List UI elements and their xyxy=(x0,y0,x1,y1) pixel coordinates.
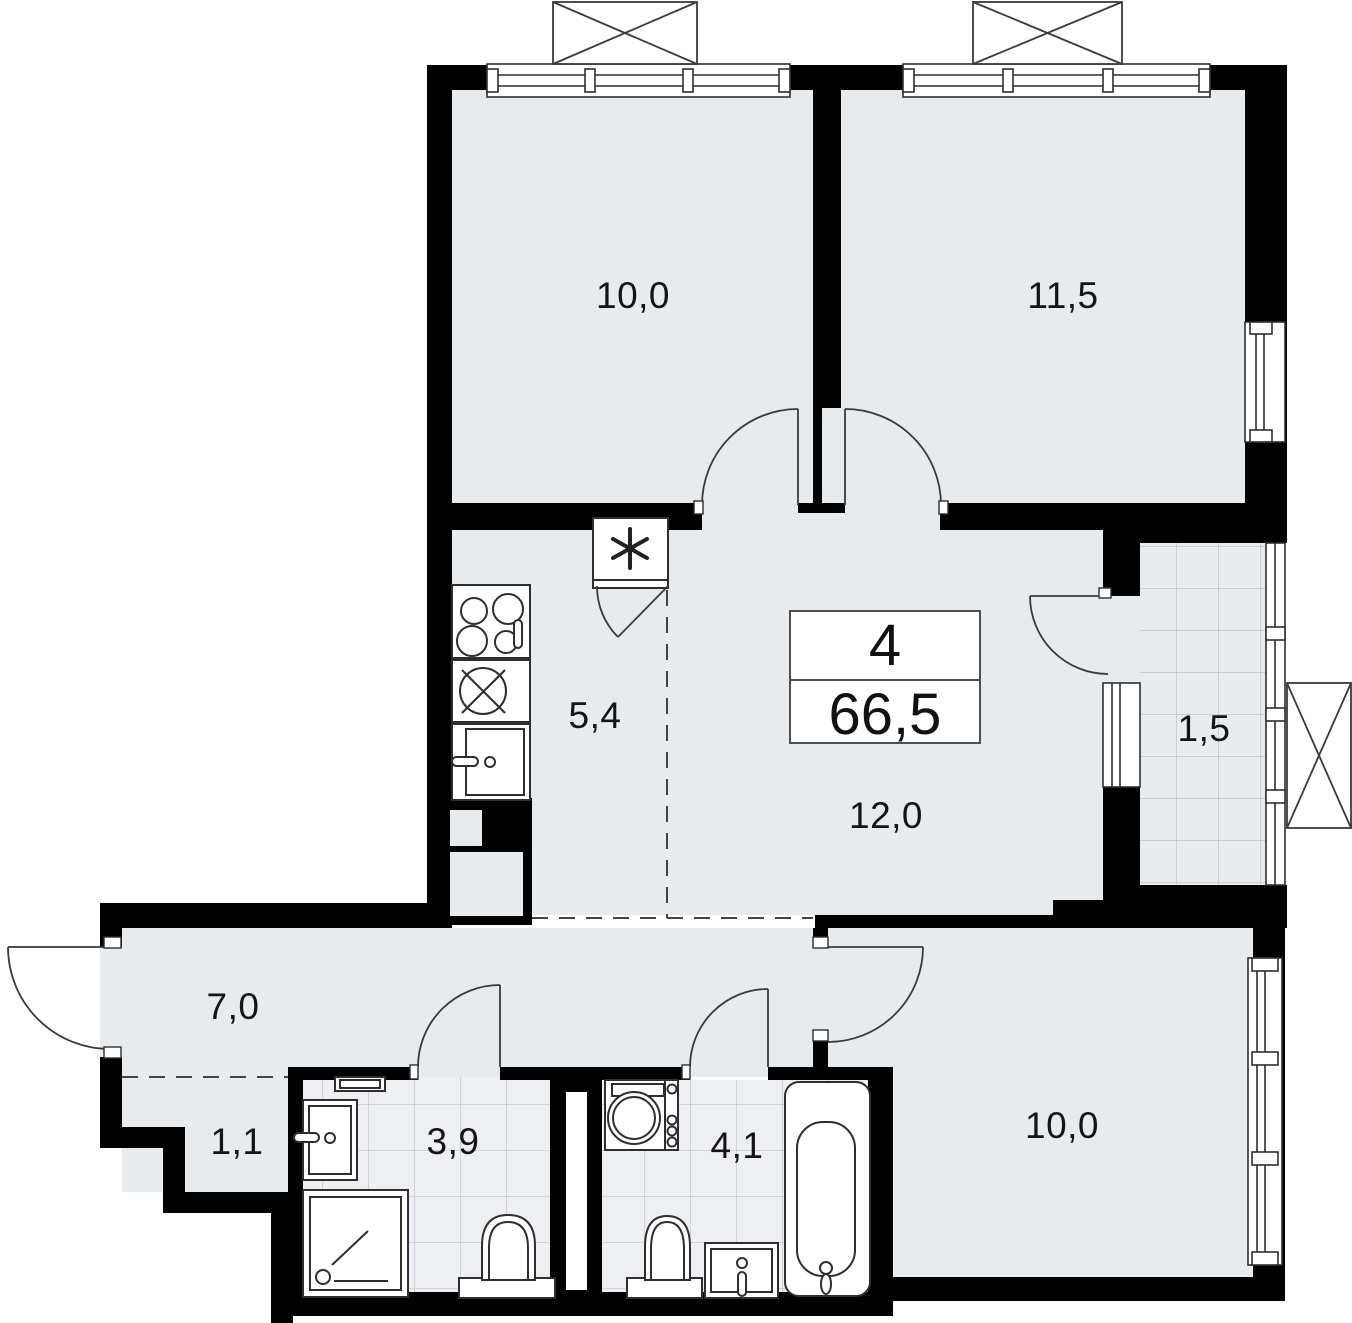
room-area-label-bathroom-right: 4,1 xyxy=(711,1125,764,1167)
floor-plan: 10,0 11,5 5,4 12,0 1,5 7,0 1,1 3,9 4,1 1… xyxy=(0,0,1352,1323)
window-bedroom-bottom xyxy=(1248,958,1282,1265)
fridge xyxy=(593,518,668,588)
towel-rail xyxy=(335,1077,385,1091)
ac-unit-box-top-left xyxy=(553,2,697,64)
bathtub xyxy=(785,1082,870,1296)
floor-plan-drawing xyxy=(0,0,1352,1323)
window-right-bedroom-top xyxy=(1245,322,1285,442)
rooms-count: 4 xyxy=(791,612,979,681)
balcony-door-opening xyxy=(1103,596,1140,683)
ac-unit-box-top-right xyxy=(973,2,1122,64)
window-top-right xyxy=(903,64,1210,97)
washbasin-left xyxy=(294,1100,357,1180)
plumbing-shaft xyxy=(566,1092,587,1290)
balcony-glazing xyxy=(1266,543,1285,885)
room-area-label-bedroom-top-left: 10,0 xyxy=(596,275,670,317)
room-area-label-hallway: 7,0 xyxy=(207,986,260,1028)
window-top-left xyxy=(487,64,790,97)
ac-unit-box-right xyxy=(1287,683,1351,828)
bedroom-door-opening xyxy=(815,947,828,1038)
stove xyxy=(452,585,530,658)
door-entry xyxy=(8,947,110,1049)
room-area-label-bedroom-bottom: 10,0 xyxy=(1025,1105,1099,1147)
room-area-label-closet: 1,1 xyxy=(211,1121,264,1163)
room-area-label-bathroom-left: 3,9 xyxy=(427,1121,480,1163)
total-area: 66,5 xyxy=(791,681,979,748)
window-living-balcony xyxy=(1103,683,1140,787)
washing-machine xyxy=(605,1080,678,1150)
room-area-label-living-hall: 12,0 xyxy=(849,795,923,837)
floor-bedrooms-top xyxy=(452,90,1245,505)
apartment-info-box: 4 66,5 xyxy=(789,610,981,744)
kitchen-sink xyxy=(452,724,530,800)
room-area-label-kitchen: 5,4 xyxy=(569,695,622,737)
room-area-label-bedroom-top-right: 11,5 xyxy=(1027,275,1098,317)
floor-kitchen-hall xyxy=(452,505,1103,915)
shower-tray xyxy=(303,1190,408,1297)
washbasin-right xyxy=(705,1243,778,1298)
oven xyxy=(452,660,530,722)
room-area-label-balcony: 1,5 xyxy=(1178,708,1231,750)
entry-door-opening xyxy=(100,947,122,1057)
